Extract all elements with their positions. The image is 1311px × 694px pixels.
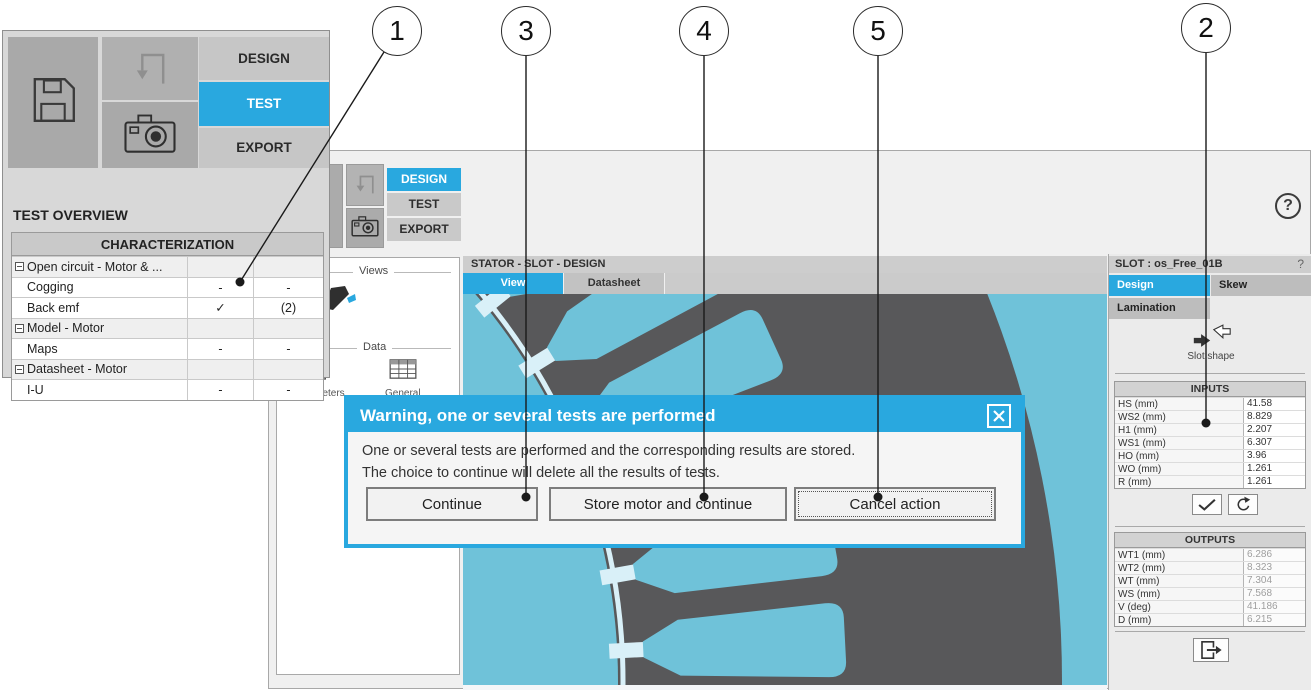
row-count: -: [253, 278, 323, 298]
callout-4: 4: [679, 6, 729, 56]
output-row: WT (mm)7.304: [1115, 574, 1305, 587]
nav-test-large[interactable]: TEST: [199, 82, 329, 126]
callout-4-label: 4: [696, 15, 712, 46]
slot-panel-title: SLOT : os_Free_01B: [1109, 256, 1311, 273]
output-label: WT1 (mm): [1115, 550, 1243, 561]
output-row: V (deg)41.186: [1115, 600, 1305, 613]
output-value: 7.304: [1243, 575, 1305, 587]
table-row[interactable]: Back emf ✓ (2): [12, 297, 323, 318]
output-value: 7.568: [1243, 588, 1305, 600]
slot-panel-help[interactable]: ?: [1297, 256, 1304, 273]
nav-design-large-label: DESIGN: [238, 51, 290, 66]
row-status: [187, 257, 253, 277]
row-status: [187, 319, 253, 339]
ribbon-nav-design[interactable]: DESIGN: [387, 168, 461, 191]
tab-view-label: View: [501, 277, 526, 289]
row-label: Model - Motor: [27, 321, 104, 335]
store-and-continue-button[interactable]: Store motor and continue: [549, 487, 787, 521]
row-label: Cogging: [27, 280, 74, 294]
check-icon: [1196, 498, 1218, 512]
table-row[interactable]: I-U - -: [12, 379, 323, 400]
input-label: HS (mm): [1115, 399, 1243, 410]
table-row-group[interactable]: Datasheet - Motor: [12, 359, 323, 380]
screenshot-button[interactable]: [346, 208, 384, 248]
reload-icon: [1234, 496, 1252, 513]
inputs-header: INPUTS: [1115, 382, 1305, 397]
input-label: HO (mm): [1115, 451, 1243, 462]
input-value[interactable]: 41.58: [1243, 398, 1305, 410]
undo-button-large[interactable]: [102, 37, 198, 100]
row-label: Maps: [27, 342, 58, 356]
nav-test-large-label: TEST: [247, 96, 282, 111]
row-status: -: [187, 380, 253, 400]
reset-button[interactable]: [1228, 494, 1258, 515]
table-row-group[interactable]: Open circuit - Motor & ...: [12, 256, 323, 277]
input-label: WS2 (mm): [1115, 412, 1243, 423]
camera-icon: [351, 215, 379, 242]
output-value: 6.215: [1243, 614, 1305, 626]
output-label: WS (mm): [1115, 589, 1243, 600]
cancel-action-button-label: Cancel action: [850, 496, 941, 513]
tab-view[interactable]: View: [463, 273, 563, 294]
row-label: Open circuit - Motor & ...: [27, 260, 162, 274]
collapse-icon[interactable]: [15, 365, 24, 374]
row-status: -: [187, 278, 253, 298]
slot-shape-label: Slot shape: [1109, 351, 1311, 362]
input-row: HO (mm)3.96: [1115, 449, 1305, 462]
collapse-icon[interactable]: [15, 262, 24, 271]
row-label: Datasheet - Motor: [27, 362, 127, 376]
export-slot-button[interactable]: [1193, 638, 1229, 662]
row-label: I-U: [27, 383, 44, 397]
inputs-table: INPUTS HS (mm)41.58 WS2 (mm)8.829 H1 (mm…: [1114, 381, 1306, 489]
dialog-title: Warning, one or several tests are perfor…: [348, 399, 1021, 432]
test-overview-inset: DESIGN TEST EXPORT TEST OVERVIEW CHARACT…: [2, 30, 330, 378]
dialog-close-button[interactable]: [987, 404, 1011, 428]
output-row: WS (mm)7.568: [1115, 587, 1305, 600]
input-value[interactable]: 2.207: [1243, 424, 1305, 436]
characterization-table: CHARACTERIZATION Open circuit - Motor & …: [11, 232, 324, 401]
ribbon-nav-export[interactable]: EXPORT: [387, 218, 461, 241]
tab-strip-filler: [665, 273, 1107, 294]
input-value[interactable]: 1.261: [1243, 463, 1305, 475]
tab-datasheet-label: Datasheet: [588, 277, 641, 289]
tab-datasheet[interactable]: Datasheet: [564, 273, 664, 294]
output-row: WT2 (mm)8.323: [1115, 561, 1305, 574]
nav-export-large-label: EXPORT: [236, 140, 292, 155]
input-value[interactable]: 1.261: [1243, 476, 1305, 488]
slot-properties-panel: SLOT : os_Free_01B ? Design Skew Laminat…: [1108, 254, 1311, 690]
save-button-large[interactable]: [8, 37, 98, 168]
continue-button-label: Continue: [422, 496, 482, 513]
save-icon: [27, 74, 79, 131]
input-row: WS1 (mm)6.307: [1115, 436, 1305, 449]
callout-2-label: 2: [1198, 12, 1214, 43]
dialog-message-line1: One or several tests are performed and t…: [362, 443, 855, 459]
callout-5-label: 5: [870, 15, 886, 46]
row-count: -: [253, 380, 323, 400]
nav-export-large[interactable]: EXPORT: [199, 128, 329, 168]
help-button[interactable]: ?: [1275, 193, 1301, 219]
tab-skew[interactable]: Skew: [1211, 275, 1311, 296]
input-value[interactable]: 8.829: [1243, 411, 1305, 423]
ribbon-nav-export-label: EXPORT: [399, 222, 448, 236]
tab-lamination[interactable]: Lamination: [1109, 298, 1210, 319]
input-label: WS1 (mm): [1115, 438, 1243, 449]
ribbon-nav-design-label: DESIGN: [401, 172, 447, 186]
output-label: V (deg): [1115, 602, 1243, 613]
canvas-footer: [463, 685, 1107, 690]
divider: [1115, 373, 1305, 374]
page: DESIGN TEST EXPORT MACHINE TOPOLOGY HOUS…: [0, 0, 1311, 694]
characterization-header: CHARACTERIZATION: [12, 233, 323, 256]
row-label: Back emf: [27, 301, 79, 315]
close-icon: [992, 409, 1006, 423]
output-value: 8.323: [1243, 562, 1305, 574]
warning-dialog: Warning, one or several tests are perfor…: [344, 395, 1025, 548]
dialog-message-line2: The choice to continue will delete all t…: [362, 465, 720, 481]
row-count: [253, 360, 323, 380]
table-row[interactable]: Maps - -: [12, 338, 323, 359]
cancel-action-button[interactable]: Cancel action: [794, 487, 996, 521]
continue-button[interactable]: Continue: [366, 487, 538, 521]
divider: [1115, 526, 1305, 527]
slot-shape-icon: [1192, 324, 1232, 348]
input-row: HS (mm)41.58: [1115, 397, 1305, 410]
ribbon-nav-test-label: TEST: [409, 197, 440, 211]
test-overview-title: TEST OVERVIEW: [13, 207, 128, 223]
apply-button[interactable]: [1192, 494, 1222, 515]
help-label: ?: [1283, 197, 1293, 214]
table-row[interactable]: Cogging - -: [12, 277, 323, 298]
input-row: WO (mm)1.261: [1115, 462, 1305, 475]
tab-skew-label: Skew: [1219, 279, 1247, 291]
tab-design-label: Design: [1117, 279, 1154, 291]
output-label: WT (mm): [1115, 576, 1243, 587]
input-label: R (mm): [1115, 477, 1243, 488]
store-and-continue-button-label: Store motor and continue: [584, 496, 752, 513]
ribbon-nav-test[interactable]: TEST: [387, 193, 461, 216]
callout-3-label: 3: [518, 15, 534, 46]
data-group-legend: Data: [357, 341, 392, 353]
tab-design[interactable]: Design: [1109, 275, 1210, 296]
row-status: -: [187, 339, 253, 359]
general-icon: [389, 358, 417, 385]
collapse-icon[interactable]: [15, 324, 24, 333]
callout-3: 3: [501, 6, 551, 56]
undo-arrow-icon: [128, 44, 172, 93]
output-label: D (mm): [1115, 615, 1243, 626]
callout-1: 1: [372, 6, 422, 56]
outputs-table: OUTPUTS WT1 (mm)6.286 WT2 (mm)8.323 WT (…: [1114, 532, 1306, 627]
row-count: -: [253, 339, 323, 359]
output-row: WT1 (mm)6.286: [1115, 548, 1305, 561]
input-row: H1 (mm)2.207: [1115, 423, 1305, 436]
callout-2: 2: [1181, 3, 1231, 53]
output-value: 41.186: [1243, 601, 1305, 613]
divider: [1115, 631, 1305, 632]
tab-lamination-label: Lamination: [1117, 302, 1176, 314]
input-label: H1 (mm): [1115, 425, 1243, 436]
input-value[interactable]: 6.307: [1243, 437, 1305, 449]
row-count: (2): [253, 298, 323, 318]
views-group-legend: Views: [353, 265, 394, 277]
output-value: 6.286: [1243, 549, 1305, 561]
export-icon: [1198, 641, 1224, 659]
input-label: WO (mm): [1115, 464, 1243, 475]
row-status: [187, 360, 253, 380]
input-value[interactable]: 3.96: [1243, 450, 1305, 462]
callout-5: 5: [853, 6, 903, 56]
row-status-check: ✓: [187, 298, 253, 318]
canvas-title: STATOR - SLOT - DESIGN: [463, 256, 1107, 273]
callout-1-label: 1: [389, 15, 405, 46]
input-row: R (mm)1.261: [1115, 475, 1305, 488]
sidebar-item-general[interactable]: General: [385, 358, 421, 399]
nav-design-large[interactable]: DESIGN: [199, 37, 329, 80]
undo-arrow-icon: [352, 170, 378, 201]
output-row: D (mm)6.215: [1115, 613, 1305, 626]
table-row-group[interactable]: Model - Motor: [12, 318, 323, 339]
outputs-header: OUTPUTS: [1115, 533, 1305, 548]
undo-button[interactable]: [346, 164, 384, 206]
output-label: WT2 (mm): [1115, 563, 1243, 574]
row-count: [253, 257, 323, 277]
camera-icon: [124, 112, 176, 159]
slot-shape-button[interactable]: [1192, 324, 1232, 353]
row-count: [253, 319, 323, 339]
input-row: WS2 (mm)8.829: [1115, 410, 1305, 423]
screenshot-button-large[interactable]: [102, 102, 198, 168]
